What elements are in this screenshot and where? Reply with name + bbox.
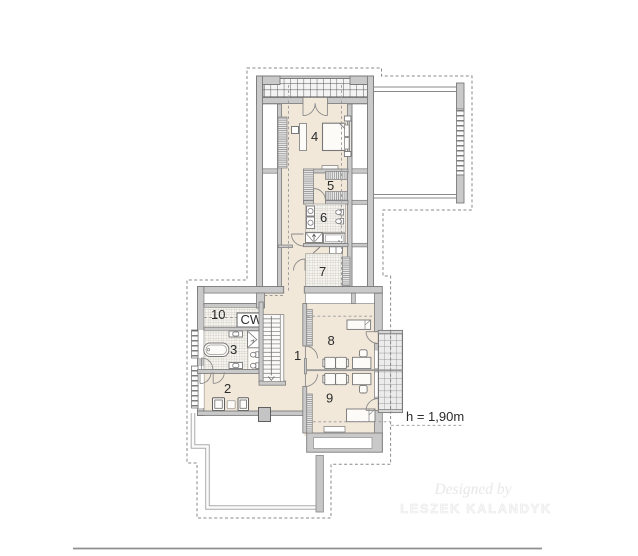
svg-text:3: 3 — [230, 342, 237, 357]
svg-text:4: 4 — [311, 129, 318, 144]
svg-text:h = 1,90m: h = 1,90m — [406, 409, 464, 424]
svg-text:Designed by: Designed by — [433, 481, 511, 498]
svg-text:5: 5 — [327, 178, 334, 193]
svg-text:2: 2 — [224, 381, 231, 396]
svg-text:8: 8 — [328, 333, 335, 348]
svg-text:6: 6 — [320, 210, 327, 225]
svg-text:7: 7 — [319, 264, 326, 279]
svg-text:9: 9 — [326, 391, 333, 406]
svg-text:1: 1 — [294, 348, 301, 363]
svg-text:LESZEK KALANDYK: LESZEK KALANDYK — [400, 501, 552, 516]
svg-text:10: 10 — [211, 307, 225, 322]
